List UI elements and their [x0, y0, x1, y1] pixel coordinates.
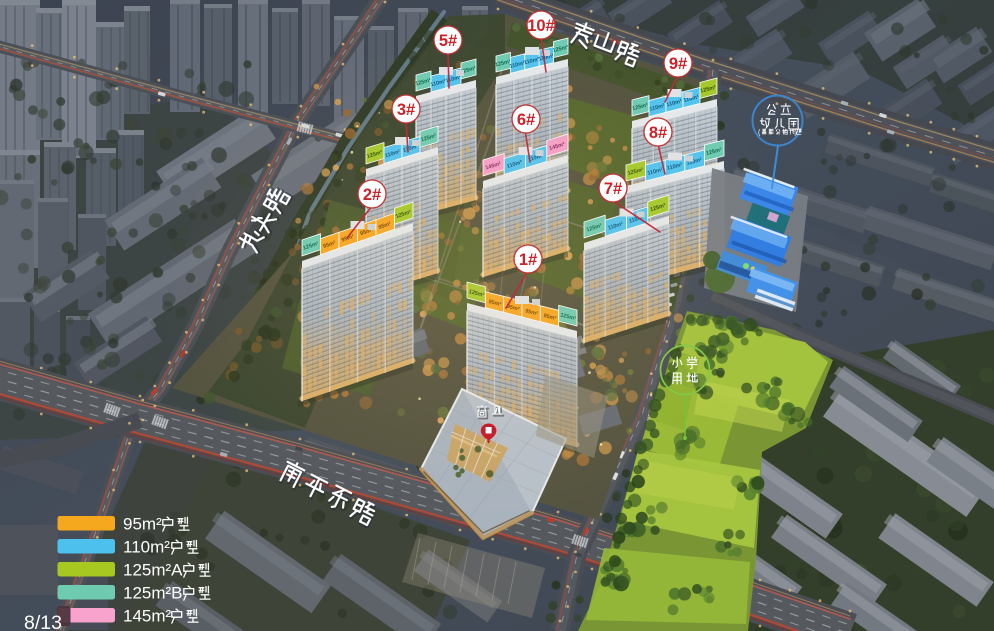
svg-text:145m²: 145m² — [123, 607, 172, 626]
svg-text:95m²: 95m² — [123, 515, 162, 534]
svg-text:1#: 1# — [519, 251, 537, 269]
svg-text:110m²: 110m² — [123, 538, 170, 557]
svg-text:125m²A: 125m²A — [123, 561, 183, 580]
svg-text:2#: 2# — [363, 186, 381, 204]
svg-text:9#: 9# — [669, 55, 687, 73]
svg-text:7#: 7# — [604, 180, 622, 198]
svg-text:3#: 3# — [397, 101, 415, 119]
svg-text:): ) — [795, 130, 797, 137]
svg-text:5#: 5# — [439, 32, 457, 50]
svg-text:125m²B: 125m²B — [123, 584, 183, 603]
svg-text:8/13: 8/13 — [24, 612, 62, 631]
svg-text:8#: 8# — [649, 124, 667, 142]
svg-text:10#: 10# — [527, 17, 555, 35]
svg-text:6#: 6# — [517, 111, 535, 129]
